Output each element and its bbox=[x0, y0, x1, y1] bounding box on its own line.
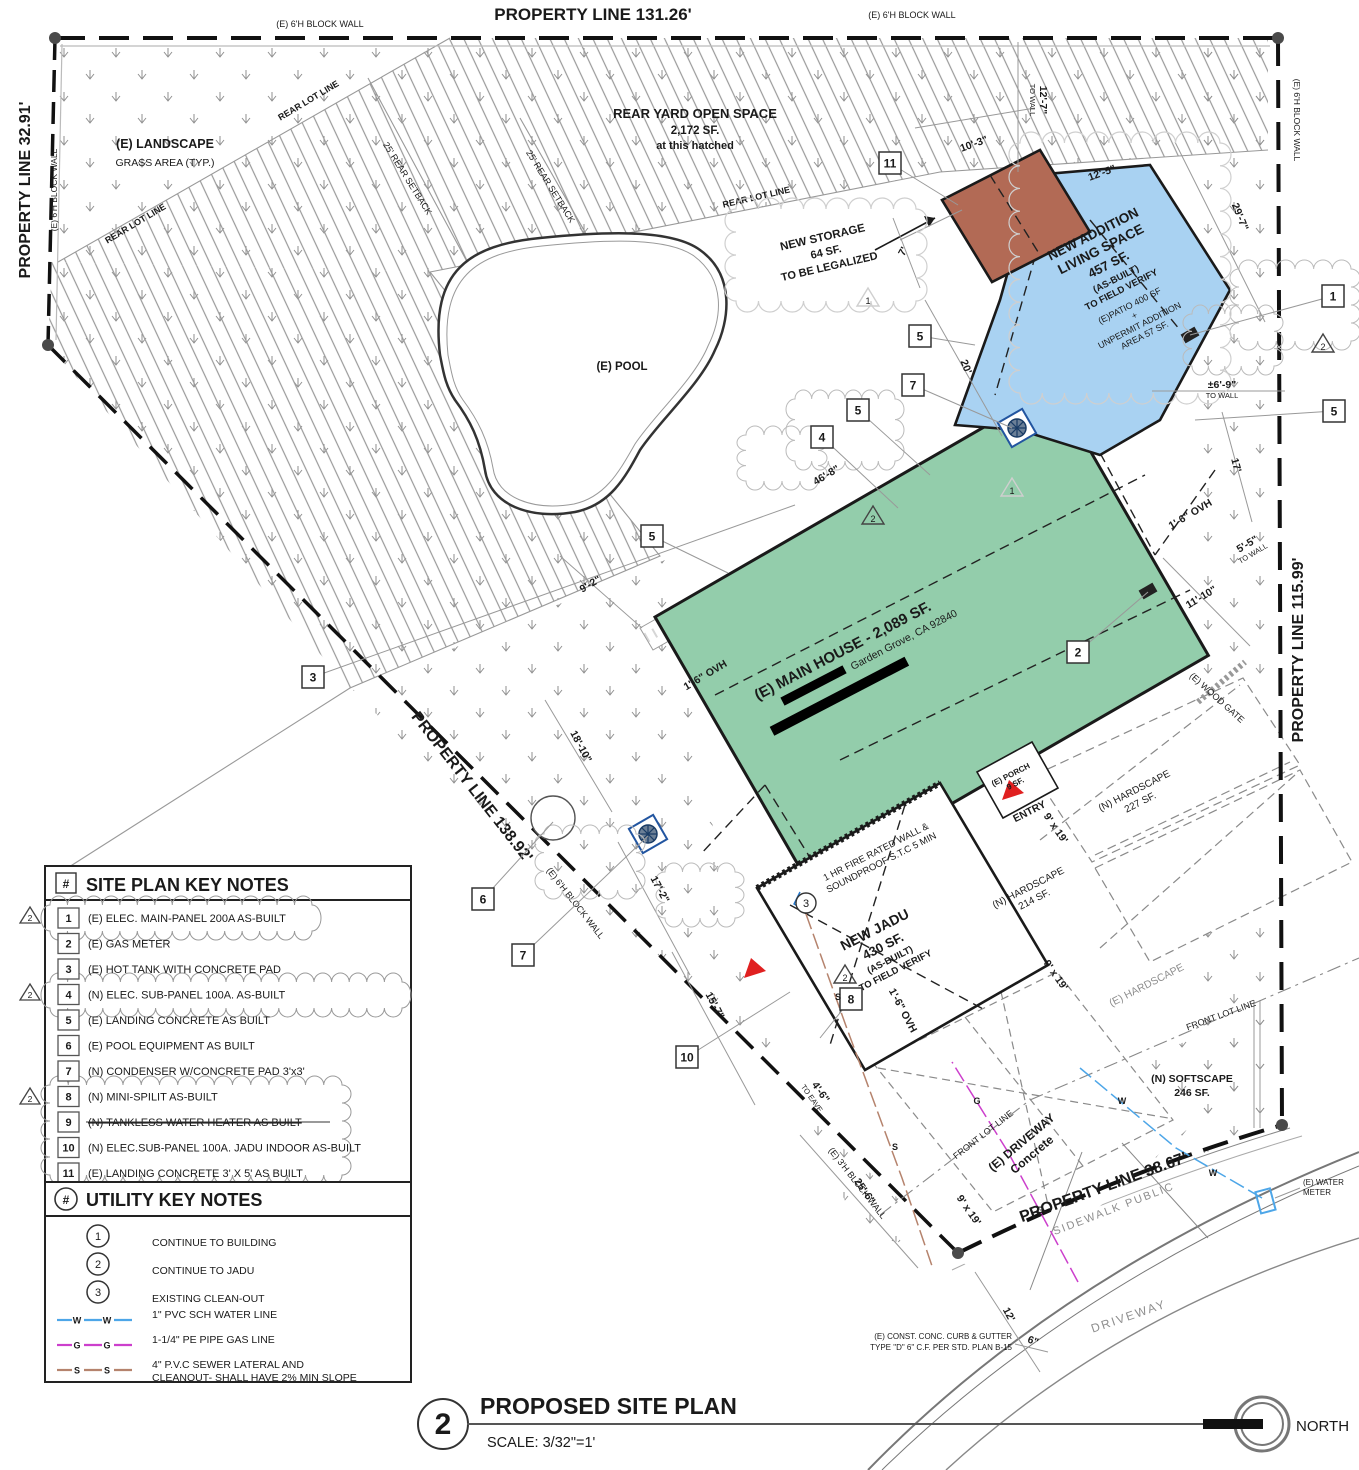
legend-keynote-text: (E) ELEC. MAIN-PANEL 200A AS-BUILT bbox=[88, 913, 286, 925]
keynote-marker-number: 1 bbox=[1330, 290, 1337, 304]
legend-revision-triangle-number: 2 bbox=[28, 990, 33, 1000]
svg-text:12': 12' bbox=[1000, 1306, 1017, 1324]
legend-keynote-text: (N) TANKLESS WATER HEATER AS BUILT bbox=[88, 1117, 302, 1129]
legend-keynote-text: (N) CONDENSER W/CONCRETE PAD 3'x3' bbox=[88, 1066, 305, 1078]
svg-text:12'-7": 12'-7" bbox=[1037, 86, 1049, 115]
legend-keynote-number: 7 bbox=[65, 1066, 71, 1078]
site-notes-hash-icon: # bbox=[63, 877, 70, 891]
legend-keynote-number: 5 bbox=[65, 1015, 71, 1027]
rear-yard-3: at this hatched bbox=[656, 140, 734, 152]
legend-keynote-text: (N) ELEC.SUB-PANEL 100A. JADU INDOOR AS-… bbox=[88, 1143, 361, 1155]
dimension-label: ±6'-9"TO WALL bbox=[1206, 379, 1239, 400]
pool-equipment-icon bbox=[531, 796, 575, 840]
legend-keynote-text: (E) GAS METER bbox=[88, 939, 171, 951]
utility-line-letter: G bbox=[973, 1096, 980, 1106]
svg-text:TO WALL: TO WALL bbox=[1206, 391, 1239, 400]
legend-keynote-text: (E) LANDING CONCRETE AS BUILT bbox=[88, 1015, 270, 1027]
north-arrow-icon bbox=[1203, 1397, 1289, 1451]
water-meter-1: (E) WATER bbox=[1303, 1178, 1344, 1187]
legend-revision-triangle-number: 2 bbox=[28, 913, 33, 923]
legend-keynote-number: 1 bbox=[65, 913, 71, 925]
legend-keynote-text: (N) ELEC. SUB-PANEL 100A. AS-BUILT bbox=[88, 990, 286, 1002]
block-wall-left: (E) 6'H BLOCK WALL bbox=[49, 148, 59, 231]
utility-line-letter: S bbox=[892, 1142, 898, 1152]
dimension-label: 7' bbox=[896, 245, 911, 258]
keynote-marker-number: 7 bbox=[910, 379, 917, 393]
legend-keynote-number: 11 bbox=[63, 1168, 75, 1180]
keynote-marker-number: 7 bbox=[520, 949, 527, 963]
legend-keynote-text: (E) POOL EQUIPMENT AS BUILT bbox=[88, 1041, 255, 1053]
rear-yard-1: REAR YARD OPEN SPACE bbox=[613, 106, 777, 121]
legend-keynote-text: (E) HOT TANK WITH CONCRETE PAD bbox=[88, 964, 281, 976]
water-meter-2: METER bbox=[1303, 1188, 1331, 1197]
keynote-marker-number: 6 bbox=[480, 893, 487, 907]
utility-line-letter: W bbox=[1209, 1168, 1218, 1178]
utility-line-symbol-letter: S bbox=[104, 1366, 110, 1376]
legend-keynote-number: 6 bbox=[65, 1041, 71, 1053]
keynote-marker-number: 5 bbox=[1331, 405, 1338, 419]
utility-line-label: 1-1/4" PE PIPE GAS LINE bbox=[152, 1334, 275, 1346]
utility-line-label-2: CLEANOUT- SHALL HAVE 2% MIN SLOPE bbox=[152, 1372, 357, 1384]
curb-note-1: (E) CONST. CONC. CURB & GUTTER bbox=[874, 1332, 1012, 1341]
street-label: DRIVEWAY bbox=[1089, 1297, 1168, 1336]
north-label: NORTH bbox=[1296, 1418, 1349, 1435]
revision-triangle-number: 2 bbox=[870, 514, 875, 524]
pool-label: (E) POOL bbox=[596, 361, 647, 373]
legend-keynote-number: 2 bbox=[65, 939, 71, 951]
legend-keynote-text: (E) LANDING CONCRETE 3' X 5' AS BUILT bbox=[88, 1168, 303, 1180]
dimension-label: 12' bbox=[1000, 1306, 1017, 1324]
utility-note-number: 1 bbox=[95, 1231, 101, 1243]
revision-triangle-number: 1 bbox=[1009, 486, 1014, 496]
property-line-left: PROPERTY LINE 32.91' bbox=[17, 102, 34, 279]
site-plan-drawing: PROPERTY LINE 131.26' (E) 6'H BLOCK WALL… bbox=[0, 0, 1359, 1470]
utility-line-symbol-letter: W bbox=[73, 1316, 82, 1326]
legend-keynote-text: (N) MINI-SPILIT AS-BUILT bbox=[88, 1092, 218, 1104]
svg-text:6": 6" bbox=[1026, 1334, 1040, 1349]
utility-note-text: CONTINUE TO JADU bbox=[152, 1265, 254, 1277]
grass-label: GRASS AREA (TYP.) bbox=[115, 157, 214, 169]
curb-note-2: TYPE "D" 6" C.F. PER STD. PLAN B-15 bbox=[870, 1343, 1012, 1352]
legend-revision-triangle-number: 2 bbox=[28, 1094, 33, 1104]
legend-keynote-number: 9 bbox=[65, 1117, 71, 1129]
keynote-marker-number: 11 bbox=[884, 157, 897, 171]
site-notes-title: SITE PLAN KEY NOTES bbox=[86, 875, 289, 895]
rear-yard-2: 2,172 SF. bbox=[671, 125, 720, 137]
svg-text:7': 7' bbox=[896, 245, 911, 258]
block-wall-top-left: (E) 6'H BLOCK WALL bbox=[276, 19, 363, 29]
utility-line-symbol-letter: G bbox=[103, 1341, 110, 1351]
block-wall-top-right: (E) 6'H BLOCK WALL bbox=[868, 10, 955, 20]
utility-note-number: 3 bbox=[95, 1287, 101, 1299]
sheet-scale: SCALE: 3/32"=1' bbox=[487, 1435, 596, 1451]
block-wall-right: (E) 6'H BLOCK WALL bbox=[1292, 79, 1302, 162]
utility-note-number: 2 bbox=[95, 1259, 101, 1271]
utility-line-symbol-letter: W bbox=[103, 1316, 112, 1326]
dimension-label: 12'-7"TO WALL bbox=[1028, 84, 1049, 117]
utility-marker-number: 3 bbox=[803, 898, 809, 910]
keynote-marker-number: 5 bbox=[917, 330, 924, 344]
property-line-right: PROPERTY LINE 115.99' bbox=[1290, 558, 1307, 743]
utility-line-letter: W bbox=[1118, 1096, 1127, 1106]
utility-notes-hash-icon: # bbox=[63, 1193, 70, 1207]
utility-line-label: 1" PVC SCH WATER LINE bbox=[152, 1309, 277, 1321]
utility-line-symbol-letter: G bbox=[73, 1341, 80, 1351]
dimension-label: 20' bbox=[958, 358, 974, 376]
hardscape-e: (E) HARDSCAPE bbox=[1107, 961, 1186, 1009]
landscape-label: (E) LANDSCAPE bbox=[116, 137, 214, 151]
softscape-1: (N) SOFTSCAPE bbox=[1151, 1073, 1233, 1085]
revision-triangle-number: 1 bbox=[865, 296, 870, 306]
legend-keynote-number: 10 bbox=[62, 1143, 74, 1155]
legend-keynote-number: 8 bbox=[65, 1092, 71, 1104]
utility-line-symbol-letter: S bbox=[74, 1366, 80, 1376]
softscape-2: 246 SF. bbox=[1174, 1087, 1210, 1099]
keynote-marker-number: 5 bbox=[855, 404, 862, 418]
title-block: 2 PROPOSED SITE PLAN SCALE: 3/32"=1' NOR… bbox=[418, 1393, 1349, 1451]
utility-line-label: 4" P.V.C SEWER LATERAL AND bbox=[152, 1359, 304, 1371]
property-line-top: PROPERTY LINE 131.26' bbox=[494, 5, 691, 24]
utility-line-letter: G bbox=[1036, 1205, 1043, 1215]
svg-text:TO WALL: TO WALL bbox=[1028, 84, 1037, 117]
revision-triangle-number: 2 bbox=[1320, 342, 1325, 352]
site-plan-sheet: { "colors": { "house_green": "#93cdab", … bbox=[0, 0, 1359, 1470]
keynote-marker-number: 8 bbox=[848, 993, 855, 1007]
keynote-marker-number: 10 bbox=[680, 1051, 694, 1065]
keynote-marker-number: 3 bbox=[310, 671, 317, 685]
revision-triangle-number: 2 bbox=[842, 973, 847, 983]
legend-keynote-number: 4 bbox=[65, 990, 72, 1002]
utility-note-text: CONTINUE TO BUILDING bbox=[152, 1237, 276, 1249]
utility-notes-title: UTILITY KEY NOTES bbox=[86, 1190, 262, 1210]
utility-line-letter: S bbox=[835, 992, 841, 1002]
keynote-marker-number: 4 bbox=[819, 431, 826, 445]
entry-arrow-jadu bbox=[744, 958, 766, 978]
svg-text:20': 20' bbox=[958, 358, 974, 376]
storage-leader bbox=[900, 210, 962, 240]
detail-number: 2 bbox=[435, 1408, 452, 1441]
svg-text:±6'-9": ±6'-9" bbox=[1208, 379, 1236, 391]
keynote-marker-number: 2 bbox=[1075, 646, 1082, 660]
utility-note-text: EXISTING CLEAN-OUT bbox=[152, 1293, 265, 1305]
legend-keynote-number: 3 bbox=[65, 964, 71, 976]
dimension-label: 6" bbox=[1026, 1334, 1040, 1349]
keynote-marker-number: 5 bbox=[649, 530, 656, 544]
sheet-title: PROPOSED SITE PLAN bbox=[480, 1393, 737, 1419]
